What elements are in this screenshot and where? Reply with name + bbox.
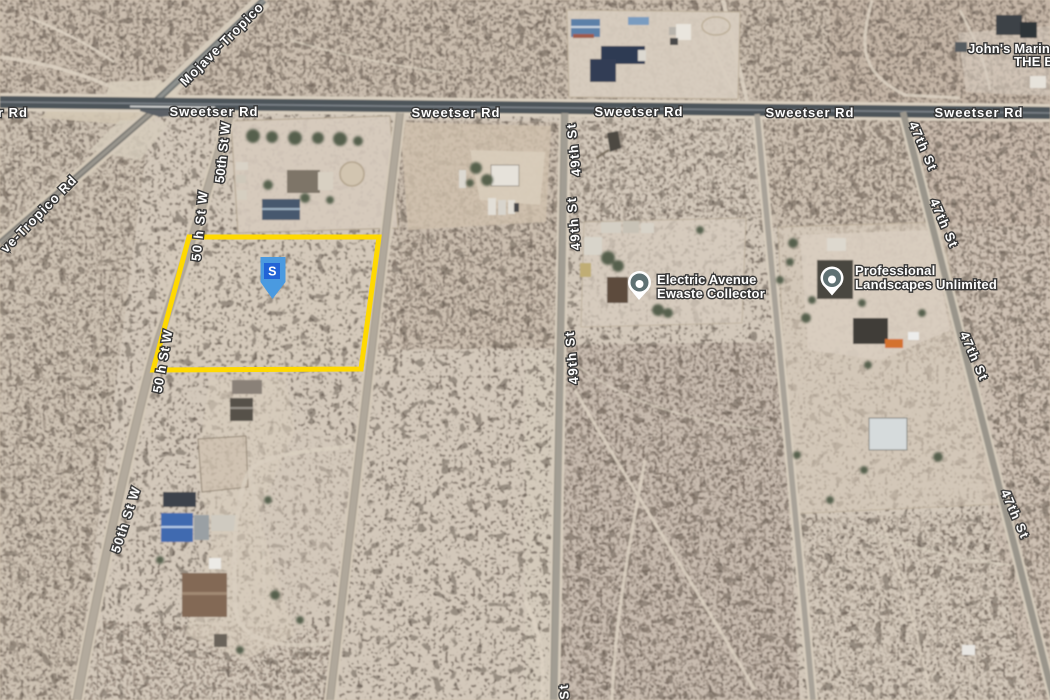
svg-text:Sweetser Rd: Sweetser Rd <box>934 105 1023 120</box>
svg-text:Electric Avenue: Electric Avenue <box>657 272 757 287</box>
svg-text:THE BO: THE BO <box>1014 54 1050 69</box>
svg-text:Sweetser Rd: Sweetser Rd <box>765 105 854 120</box>
svg-text:Sweetser Rd: Sweetser Rd <box>169 104 258 119</box>
svg-text:Sweetser Rd: Sweetser Rd <box>0 105 28 120</box>
svg-text:Professional: Professional <box>855 263 935 278</box>
svg-text:Landscapes Unlimited: Landscapes Unlimited <box>855 277 997 292</box>
svg-text:S: S <box>268 265 276 279</box>
svg-text:Sweetser Rd: Sweetser Rd <box>594 104 683 119</box>
svg-text:Sweetser Rd: Sweetser Rd <box>411 105 500 120</box>
svg-text:Ewaste Collector: Ewaste Collector <box>657 286 765 301</box>
